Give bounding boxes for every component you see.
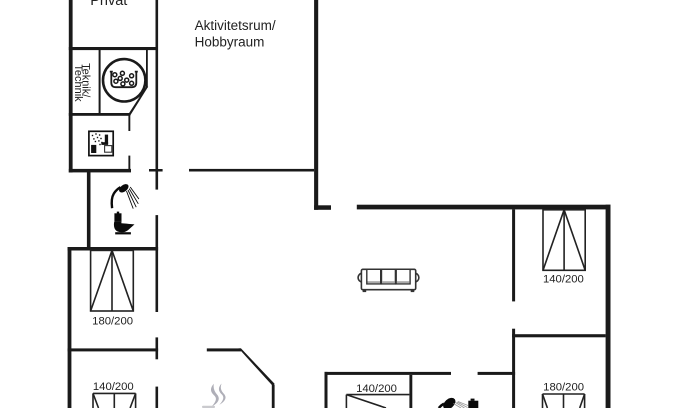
svg-text:140/200: 140/200 bbox=[93, 381, 134, 393]
svg-text:Technik: Technik bbox=[72, 64, 84, 102]
svg-text:Hobbyraum: Hobbyraum bbox=[195, 34, 265, 49]
svg-text:140/200: 140/200 bbox=[543, 273, 584, 285]
svg-text:Privat: Privat bbox=[90, 0, 127, 9]
svg-text:140/200: 140/200 bbox=[356, 383, 397, 395]
svg-text:Aktivitetsrum/: Aktivitetsrum/ bbox=[195, 18, 276, 33]
svg-text:180/200: 180/200 bbox=[543, 381, 584, 393]
svg-text:180/200: 180/200 bbox=[92, 315, 133, 327]
